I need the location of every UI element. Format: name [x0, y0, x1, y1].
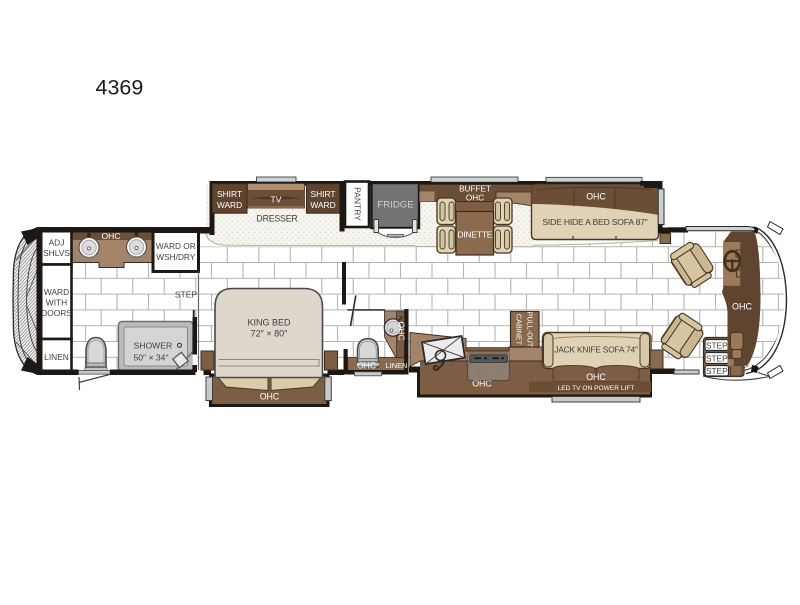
svg-text:50″ × 34″: 50″ × 34″	[134, 352, 169, 362]
svg-text:STEP: STEP	[706, 366, 728, 376]
svg-text:SHLVS: SHLVS	[43, 248, 70, 258]
svg-text:SHIRT: SHIRT	[217, 189, 242, 199]
svg-text:OHC: OHC	[586, 191, 606, 201]
svg-text:STEP: STEP	[706, 354, 728, 364]
svg-text:DOORS: DOORS	[41, 308, 72, 318]
svg-text:DRESSER: DRESSER	[256, 214, 297, 224]
svg-text:PANTRY: PANTRY	[353, 187, 363, 221]
svg-text:OHC: OHC	[586, 372, 606, 382]
svg-text:OHC: OHC	[357, 360, 376, 370]
svg-text:KING BED: KING BED	[247, 317, 291, 327]
svg-text:WARD: WARD	[44, 287, 69, 297]
svg-text:OHC: OHC	[397, 321, 407, 340]
svg-text:OHC: OHC	[732, 302, 753, 312]
svg-text:WARD: WARD	[310, 200, 335, 210]
svg-text:WSH/DRY: WSH/DRY	[156, 252, 195, 262]
svg-text:PULL-OUT: PULL-OUT	[526, 312, 535, 348]
svg-text:ADJ: ADJ	[49, 238, 65, 248]
svg-text:JACK KNIFE SOFA 74″: JACK KNIFE SOFA 74″	[554, 345, 638, 355]
svg-text:SHIRT: SHIRT	[311, 189, 336, 199]
svg-text:LINEN: LINEN	[386, 361, 408, 370]
svg-text:WARD: WARD	[217, 200, 242, 210]
svg-text:DINETTE: DINETTE	[457, 230, 492, 240]
svg-text:TV: TV	[271, 195, 282, 205]
svg-text:SHOWER: SHOWER	[134, 340, 173, 350]
svg-text:LED TV ON POWER LIFT: LED TV ON POWER LIFT	[558, 385, 635, 392]
svg-text:STEP: STEP	[175, 290, 198, 300]
svg-text:LINEN: LINEN	[44, 352, 69, 362]
svg-text:WARD OR: WARD OR	[156, 241, 196, 251]
svg-text:CABINET: CABINET	[515, 314, 524, 346]
svg-text:4369: 4369	[96, 76, 144, 100]
svg-text:FRIDGE: FRIDGE	[377, 200, 413, 211]
svg-text:BUFFET: BUFFET	[459, 185, 491, 194]
svg-text:OHC: OHC	[260, 391, 280, 401]
svg-text:SIDE HIDE A BED SOFA 87″: SIDE HIDE A BED SOFA 87″	[542, 217, 647, 227]
svg-text:STEP: STEP	[706, 341, 728, 351]
svg-text:72″ × 80″: 72″ × 80″	[251, 329, 288, 339]
svg-text:WITH: WITH	[46, 298, 67, 308]
